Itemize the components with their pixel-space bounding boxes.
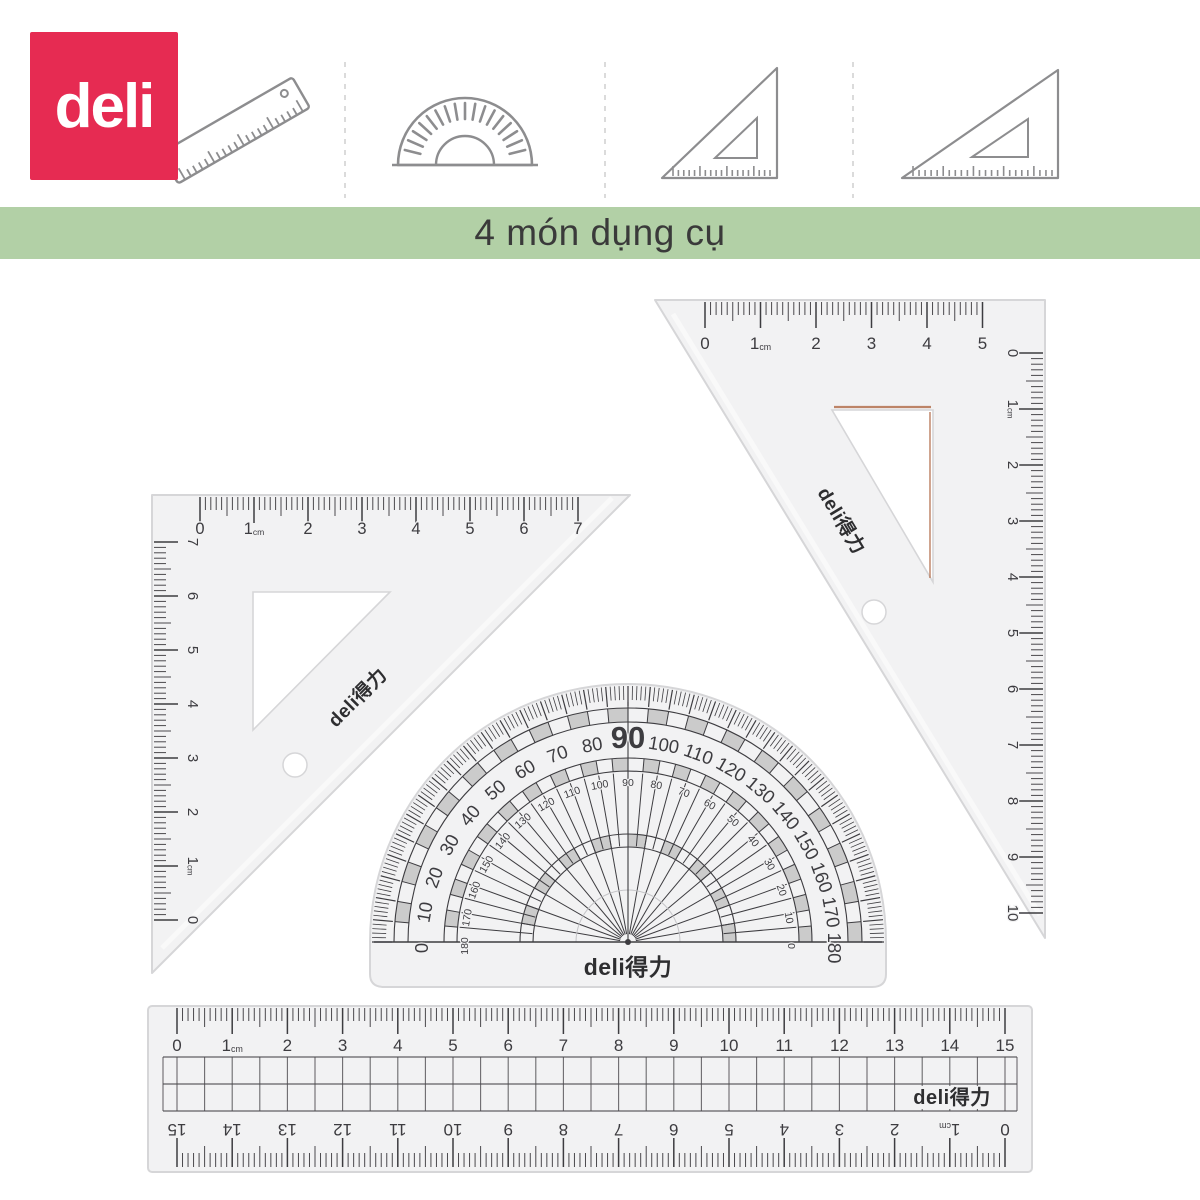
svg-text:3: 3 xyxy=(835,1120,844,1139)
set-square-45-icon xyxy=(662,68,777,178)
svg-text:14: 14 xyxy=(223,1120,242,1139)
svg-text:7: 7 xyxy=(1004,741,1021,749)
svg-text:0: 0 xyxy=(700,334,709,353)
ruler-icon xyxy=(161,77,310,183)
svg-text:7: 7 xyxy=(573,520,582,538)
svg-text:4: 4 xyxy=(184,700,201,708)
svg-text:12: 12 xyxy=(830,1036,849,1055)
svg-text:6: 6 xyxy=(503,1036,512,1055)
banner-text: 4 món dụng cụ xyxy=(474,212,725,254)
svg-text:0: 0 xyxy=(172,1036,181,1055)
svg-text:2: 2 xyxy=(184,808,201,816)
svg-text:0: 0 xyxy=(184,916,201,924)
set-square-30-icon xyxy=(902,70,1058,178)
svg-text:6: 6 xyxy=(1004,685,1021,693)
svg-text:12: 12 xyxy=(333,1120,352,1139)
svg-text:6: 6 xyxy=(669,1120,678,1139)
svg-text:8: 8 xyxy=(1004,797,1021,805)
svg-text:4: 4 xyxy=(779,1120,788,1139)
svg-text:3: 3 xyxy=(867,334,876,353)
svg-text:0: 0 xyxy=(785,943,797,949)
svg-text:3: 3 xyxy=(184,754,201,762)
svg-text:90: 90 xyxy=(611,720,645,755)
svg-text:4: 4 xyxy=(393,1036,402,1055)
svg-text:8: 8 xyxy=(559,1120,568,1139)
svg-text:80: 80 xyxy=(580,733,604,757)
svg-text:0: 0 xyxy=(195,520,204,538)
svg-text:2: 2 xyxy=(1004,461,1021,469)
svg-text:7: 7 xyxy=(184,538,201,546)
svg-text:2: 2 xyxy=(811,334,820,353)
svg-text:6: 6 xyxy=(519,520,528,538)
svg-text:2: 2 xyxy=(283,1036,292,1055)
svg-text:180: 180 xyxy=(824,933,845,964)
svg-text:90: 90 xyxy=(622,777,634,789)
svg-text:5: 5 xyxy=(465,520,474,538)
svg-text:5: 5 xyxy=(184,646,201,654)
svg-text:10: 10 xyxy=(444,1120,463,1139)
svg-text:15: 15 xyxy=(168,1120,187,1139)
svg-text:10: 10 xyxy=(720,1036,739,1055)
brand-logo-text: deli xyxy=(55,71,154,142)
ruler-15cm: 01cm23456789101112131415deli得力1514131211… xyxy=(148,1006,1032,1172)
svg-text:180: 180 xyxy=(459,937,471,955)
svg-text:13: 13 xyxy=(278,1120,297,1139)
header-icons-row xyxy=(0,0,1200,210)
svg-text:80: 80 xyxy=(650,779,664,793)
svg-text:8: 8 xyxy=(614,1036,623,1055)
svg-text:3: 3 xyxy=(338,1036,347,1055)
svg-text:9: 9 xyxy=(503,1120,512,1139)
svg-text:11: 11 xyxy=(775,1036,793,1055)
svg-text:6: 6 xyxy=(184,592,201,600)
svg-text:5: 5 xyxy=(448,1036,457,1055)
product-image: 01cm2345677654321cm0deli得力 01cm234501cm2… xyxy=(0,0,1200,1200)
svg-text:2: 2 xyxy=(890,1120,899,1139)
svg-text:13: 13 xyxy=(885,1036,904,1055)
protractor: 0102030405060708090100110120130140150160… xyxy=(370,684,886,987)
svg-text:10: 10 xyxy=(782,911,796,925)
svg-text:3: 3 xyxy=(1004,517,1021,525)
svg-text:5: 5 xyxy=(978,334,987,353)
svg-text:4: 4 xyxy=(1004,573,1021,581)
svg-text:2: 2 xyxy=(303,520,312,538)
svg-text:10: 10 xyxy=(413,900,437,924)
svg-text:10: 10 xyxy=(1004,905,1021,922)
brand-mark: deli得力 xyxy=(584,954,673,980)
svg-text:7: 7 xyxy=(614,1120,623,1139)
svg-text:3: 3 xyxy=(357,520,366,538)
svg-text:14: 14 xyxy=(940,1036,959,1055)
protractor-icon xyxy=(392,98,538,165)
svg-text:4: 4 xyxy=(922,334,931,353)
svg-text:7: 7 xyxy=(559,1036,568,1055)
brand-logo: deli xyxy=(30,32,178,180)
product-count-banner: 4 món dụng cụ xyxy=(0,207,1200,259)
svg-text:0: 0 xyxy=(411,943,432,953)
svg-text:11: 11 xyxy=(389,1120,407,1139)
svg-text:15: 15 xyxy=(996,1036,1015,1055)
svg-text:0: 0 xyxy=(1004,349,1021,357)
svg-text:5: 5 xyxy=(1004,629,1021,637)
svg-text:4: 4 xyxy=(411,520,420,538)
svg-text:9: 9 xyxy=(669,1036,678,1055)
svg-text:0: 0 xyxy=(1000,1120,1009,1139)
svg-text:9: 9 xyxy=(1004,853,1021,861)
svg-text:5: 5 xyxy=(724,1120,733,1139)
brand-mark: deli得力 xyxy=(913,1085,990,1109)
